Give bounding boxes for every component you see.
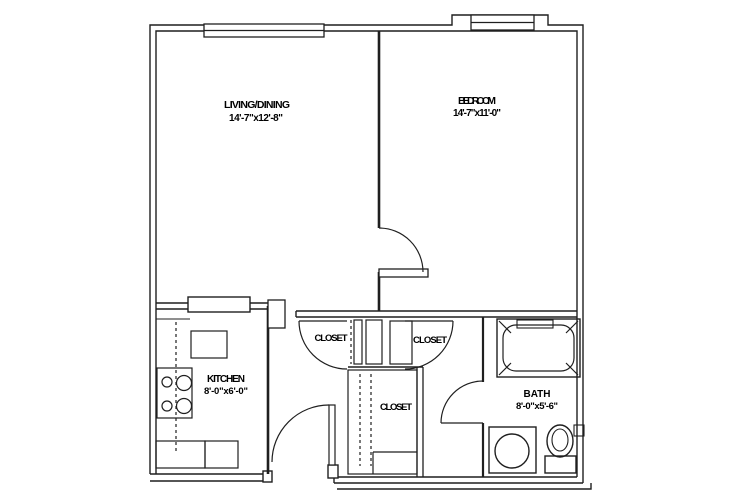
bath-door-arc (441, 381, 483, 423)
bathtub (497, 319, 580, 377)
exterior-wall-inner (156, 31, 577, 477)
closet-lower-right-wall (417, 367, 423, 477)
bottom-wall-right (334, 477, 583, 483)
living-window (204, 24, 324, 37)
closet-lower (348, 370, 417, 474)
entry-jamb-right (328, 465, 338, 478)
entry-door-arc (272, 405, 329, 462)
entry-door-leaf (329, 405, 335, 465)
bedroom-label: BEDROOM (458, 95, 496, 107)
closet-right-label: CLOSET (413, 335, 447, 346)
bottom-wall-left (150, 474, 268, 481)
closet-door-left (299, 321, 347, 369)
interior-walls (156, 31, 577, 477)
bedroom-window (471, 15, 534, 30)
closet-shelving-top (351, 320, 412, 364)
floor-plan-page: LIVING/DINING 14'-7"x12'-8" BEDROOM 14'-… (0, 0, 730, 500)
toilet (545, 425, 576, 473)
bath-dimensions: 8'-0"x5'-6" (516, 401, 558, 412)
bathroom-sink (489, 427, 536, 473)
closet-lower-label: CLOSET (380, 402, 412, 413)
doors (272, 228, 483, 465)
kitchen-label: KITCHEN (207, 374, 245, 385)
bottom-wall-outer-line (337, 483, 591, 489)
bedroom-door-arc (379, 228, 423, 272)
bath-label: BATH (524, 389, 551, 400)
kitchen-passthrough (188, 297, 250, 312)
living-dining-dimensions: 14'-7"x12'-8" (229, 113, 283, 124)
closet-left-label: CLOSET (315, 333, 348, 344)
living-dining-label: LIVING/DINING (224, 99, 290, 111)
closets (348, 320, 417, 474)
wall-band-mid (296, 311, 577, 317)
tub-faucet-deck (517, 320, 553, 328)
closet-lower-outline (348, 370, 417, 474)
kitchen-chase (268, 300, 285, 328)
bath-door (441, 381, 483, 423)
kitchen-counter-sink (156, 441, 238, 468)
bedroom-door-stub-wall (379, 269, 428, 277)
closet-door-left-arc (299, 321, 347, 369)
kitchen-dimensions: 8'-0"x6'-0" (204, 386, 248, 397)
bedroom-dimensions: 14'-7"x11'-0" (453, 108, 501, 119)
windows (204, 15, 534, 37)
entry-door (272, 405, 335, 465)
exterior-wall-outer (150, 15, 583, 483)
floor-plan-drawing: LIVING/DINING 14'-7"x12'-8" BEDROOM 14'-… (0, 0, 730, 500)
stove-icon (157, 368, 192, 418)
closet-lower-shelf (373, 452, 417, 474)
refrigerator (191, 331, 227, 358)
